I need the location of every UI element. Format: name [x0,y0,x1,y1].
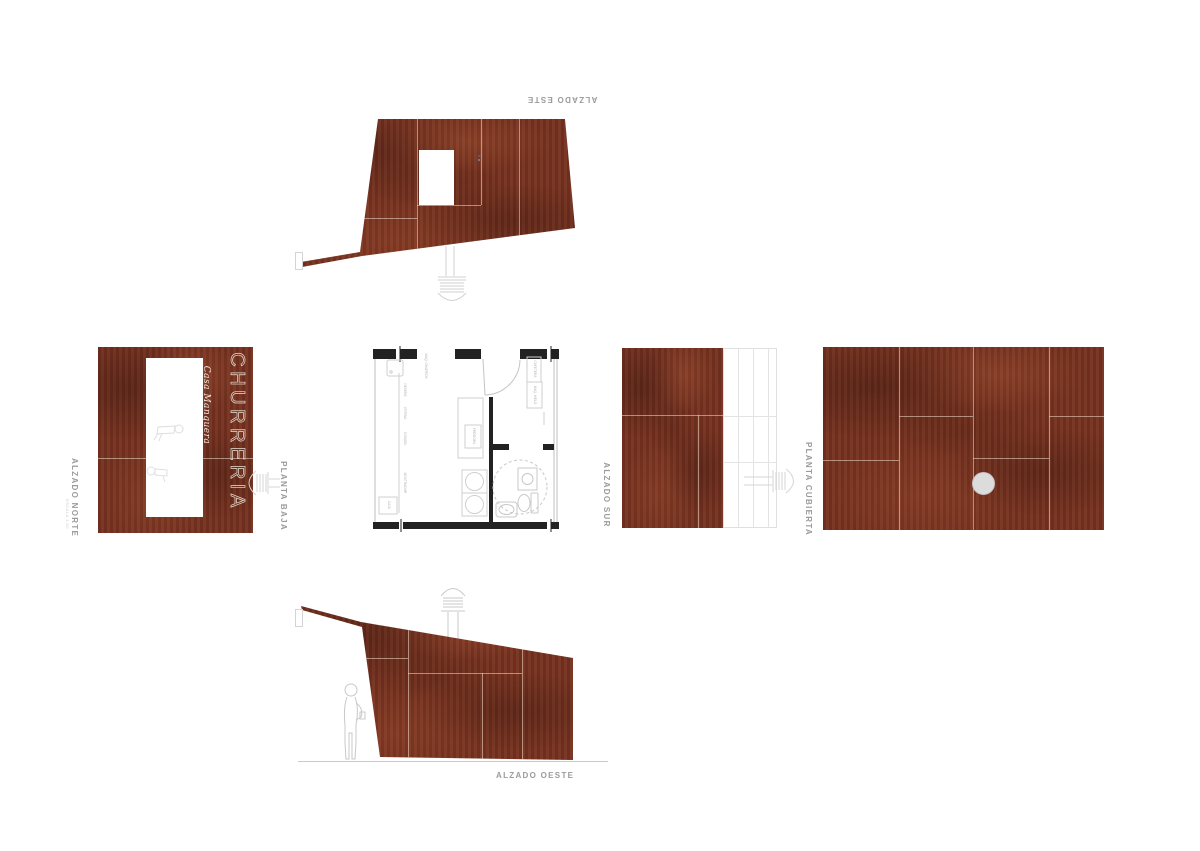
panel-joint [417,205,481,206]
panel-joint [899,416,973,417]
ground-line [298,761,608,762]
plan-vent-left-icon [246,470,280,496]
svg-text:CONGEL.: CONGEL. [403,432,407,446]
roof-vent-cap [972,472,995,495]
roof-vent-side-icon [744,466,798,496]
panel-joint [899,347,900,530]
panel-joint [973,347,974,530]
panel-joint [364,218,417,219]
svg-text:CAJA: CAJA [387,501,391,510]
panel-joint [482,673,483,759]
panel-joint [481,119,482,205]
customer-figure-icon [143,464,173,484]
drawing-sheet: ALZADO ESTE Casa Manquer [0,0,1200,851]
plan-bathroom [493,460,547,517]
panel-joint [622,415,723,416]
south-elevation-view [622,348,777,528]
south-elevation-facade [622,348,723,528]
plan-entry-door [483,359,520,395]
person-figure-icon [334,681,370,761]
north-elevation-view: Casa Manquera CHURRERIA [98,347,253,533]
panel-joint [408,673,522,674]
sign-subtitle: Casa Manquera [200,355,212,455]
west-elevation-label: ALZADO OESTE [496,770,566,782]
east-window [419,150,454,205]
west-gutter-end [295,609,303,627]
panel-joint [522,649,523,760]
sign-title: CHURRERIA [226,352,248,512]
north-elevation-facade: Casa Manquera CHURRERIA [98,347,253,533]
panel-joint [698,415,699,528]
customer-figure-icon [146,420,186,446]
svg-text:NEVERA: NEVERA [403,383,407,397]
south-glazed-strip [723,348,777,528]
panel-joint [519,119,520,236]
east-door-handle [478,155,481,157]
panel-joint [417,119,418,249]
roof-plan-surface [823,347,1104,530]
east-door-handle-dot [478,159,480,161]
east-elevation-label: ALZADO ESTE [517,93,607,105]
panel-joint [1049,347,1050,530]
svg-text:MAQ. HIELO: MAQ. HIELO [533,386,537,405]
panel-joint [823,460,899,461]
east-gutter-end [295,252,303,270]
roof-plan-label: PLANTA CUBIERTA [802,439,814,539]
panel-joint [973,458,1049,459]
panel-joint [366,658,408,659]
panel-joint [1049,416,1104,417]
ground-floor-plan-label: PLANTA BAJA [277,461,289,531]
south-elevation-label: ALZADO SUR [600,461,612,529]
panel-joint [408,630,409,757]
ground-floor-plan: MAQ. CHURROS NEVERA VITRINA CONGEL. MOST… [370,342,565,534]
svg-text:MAQ. CHURROS: MAQ. CHURROS [424,353,428,378]
east-roof-vent-icon [432,246,472,304]
svg-text:MOSTRADOR: MOSTRADOR [403,473,407,494]
svg-text:CAFETERA: CAFETERA [533,360,537,378]
roof-plan-view [823,347,1104,530]
panel-joint [98,458,146,459]
svg-text:FREIDORA: FREIDORA [472,428,476,445]
svg-text:VITRINA: VITRINA [403,407,407,420]
scale-note: ESCALA 1:50 [63,496,71,532]
